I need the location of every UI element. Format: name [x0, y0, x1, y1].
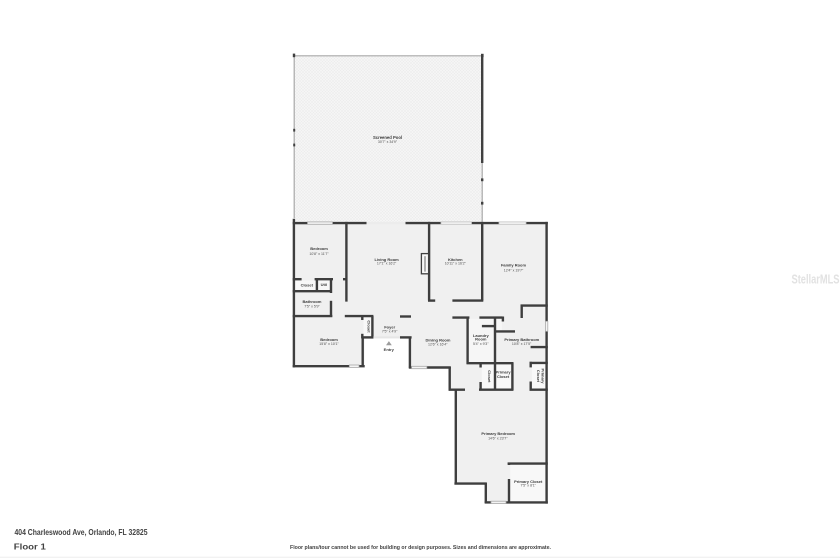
- svg-text:Floor plans/tour cannot be use: Floor plans/tour cannot be used for buil…: [290, 545, 552, 551]
- svg-text:12'4" x 19'7": 12'4" x 19'7": [504, 269, 524, 273]
- svg-text:404 Charleswood Ave, Orlando,: 404 Charleswood Ave, Orlando, FL 32825: [15, 527, 148, 537]
- svg-text:7'5" x 5'9": 7'5" x 5'9": [304, 304, 320, 308]
- svg-text:StellarMLS: StellarMLS: [792, 273, 840, 287]
- svg-text:12'6" x 16'4": 12'6" x 16'4": [428, 343, 448, 347]
- svg-text:Closet: Closet: [366, 320, 371, 333]
- svg-text:10'11" x 16'2": 10'11" x 16'2": [445, 262, 467, 266]
- svg-text:Room: Room: [475, 337, 487, 342]
- svg-text:10'8" x 11'7": 10'8" x 11'7": [309, 252, 329, 256]
- svg-text:Closet: Closet: [497, 374, 510, 379]
- svg-text:Closet: Closet: [301, 283, 314, 288]
- svg-text:Closet: Closet: [487, 370, 492, 383]
- svg-text:17'1" x 16'2": 17'1" x 16'2": [377, 262, 397, 266]
- svg-text:10'8" x 17'5": 10'8" x 17'5": [512, 342, 532, 346]
- svg-text:15'8" x 10'1": 15'8" x 10'1": [319, 342, 339, 346]
- svg-text:7'5" x 4'9": 7'5" x 4'9": [382, 330, 398, 334]
- svg-text:Closet: Closet: [536, 370, 541, 383]
- svg-text:Util: Util: [321, 282, 327, 287]
- svg-text:14'6" x 23'7": 14'6" x 23'7": [488, 437, 508, 441]
- svg-text:30'7" x 34'9": 30'7" x 34'9": [378, 140, 398, 144]
- svg-text:Floor 1: Floor 1: [14, 541, 46, 551]
- svg-text:Primary Bedroom: Primary Bedroom: [481, 431, 515, 436]
- svg-text:Entry: Entry: [384, 347, 395, 352]
- svg-text:Family Room: Family Room: [501, 263, 527, 268]
- svg-text:Bedroom: Bedroom: [310, 246, 328, 251]
- svg-text:7'5" x 8'1": 7'5" x 8'1": [520, 484, 536, 488]
- svg-text:5'4" x 9'3": 5'4" x 9'3": [473, 342, 489, 346]
